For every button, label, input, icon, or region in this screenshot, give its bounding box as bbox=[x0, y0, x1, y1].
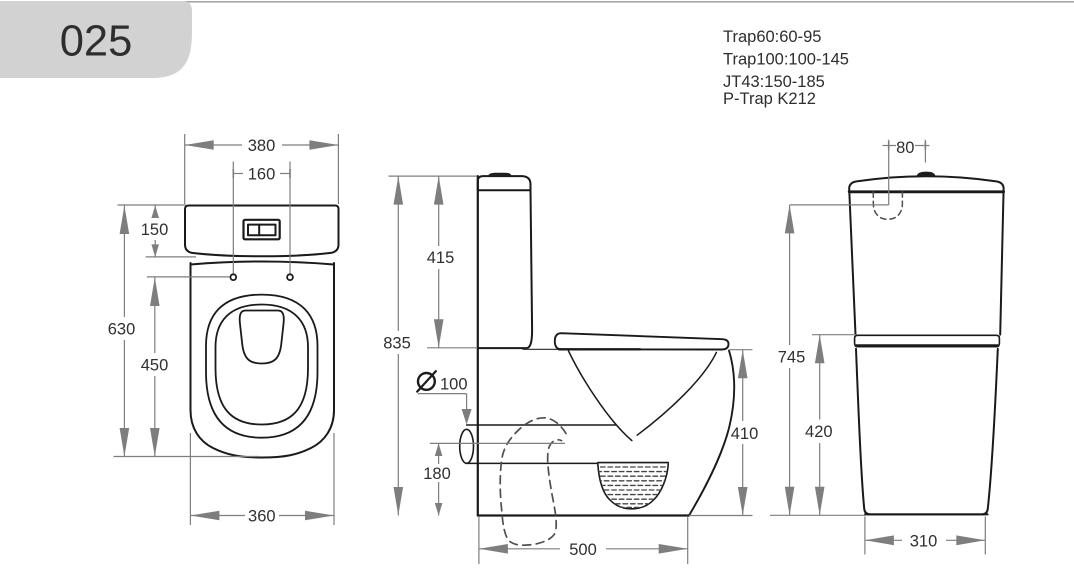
svg-text:160: 160 bbox=[248, 165, 276, 183]
svg-text:JT43:150-185: JT43:150-185 bbox=[723, 73, 825, 91]
svg-text:025: 025 bbox=[60, 18, 133, 66]
svg-text:450: 450 bbox=[141, 356, 169, 374]
svg-text:415: 415 bbox=[427, 249, 455, 267]
svg-text:80: 80 bbox=[896, 139, 914, 157]
svg-text:310: 310 bbox=[910, 532, 938, 550]
svg-text:P-Trap K212: P-Trap K212 bbox=[723, 90, 816, 108]
svg-text:380: 380 bbox=[248, 137, 276, 155]
svg-text:100: 100 bbox=[440, 376, 468, 394]
svg-text:630: 630 bbox=[108, 320, 136, 338]
svg-text:420: 420 bbox=[805, 423, 833, 441]
svg-text:360: 360 bbox=[248, 507, 276, 525]
svg-text:500: 500 bbox=[569, 541, 597, 559]
svg-text:Trap60:60-95: Trap60:60-95 bbox=[723, 28, 821, 46]
svg-text:745: 745 bbox=[778, 349, 806, 367]
svg-text:180: 180 bbox=[423, 465, 451, 483]
svg-text:835: 835 bbox=[383, 335, 411, 353]
svg-text:Trap100:100-145: Trap100:100-145 bbox=[723, 51, 849, 69]
svg-text:410: 410 bbox=[731, 425, 759, 443]
svg-text:150: 150 bbox=[141, 221, 169, 239]
